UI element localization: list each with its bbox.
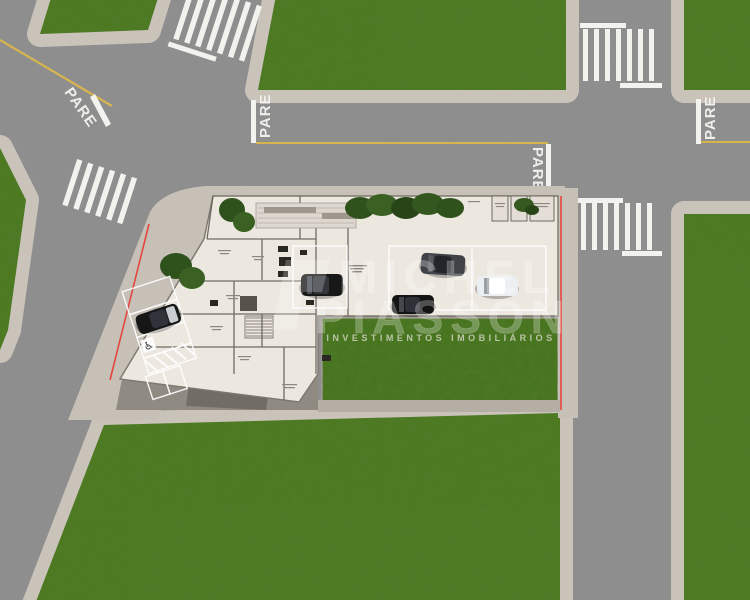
site-plan-rendering: PARE PARE PARE PARE xyxy=(0,0,750,600)
elevator-shaft xyxy=(240,296,257,311)
stop-line-center-west xyxy=(251,100,256,143)
watermark: MICHEL PIASSON INVESTIMENTOS IMOBILIÁRIO… xyxy=(272,251,571,343)
pare-marking-center-east: PARE xyxy=(529,147,546,192)
lawn-retaining-wall xyxy=(318,400,560,412)
pare-marking-center-west: PARE xyxy=(257,93,274,138)
stop-line-east xyxy=(696,99,701,144)
watermark-tagline: INVESTIMENTOS IMOBILIÁRIOS xyxy=(326,333,555,343)
pare-marking-east: PARE xyxy=(702,95,719,140)
site-plan-canvas: PARE PARE PARE PARE xyxy=(0,0,750,600)
entry-steps xyxy=(256,203,356,228)
